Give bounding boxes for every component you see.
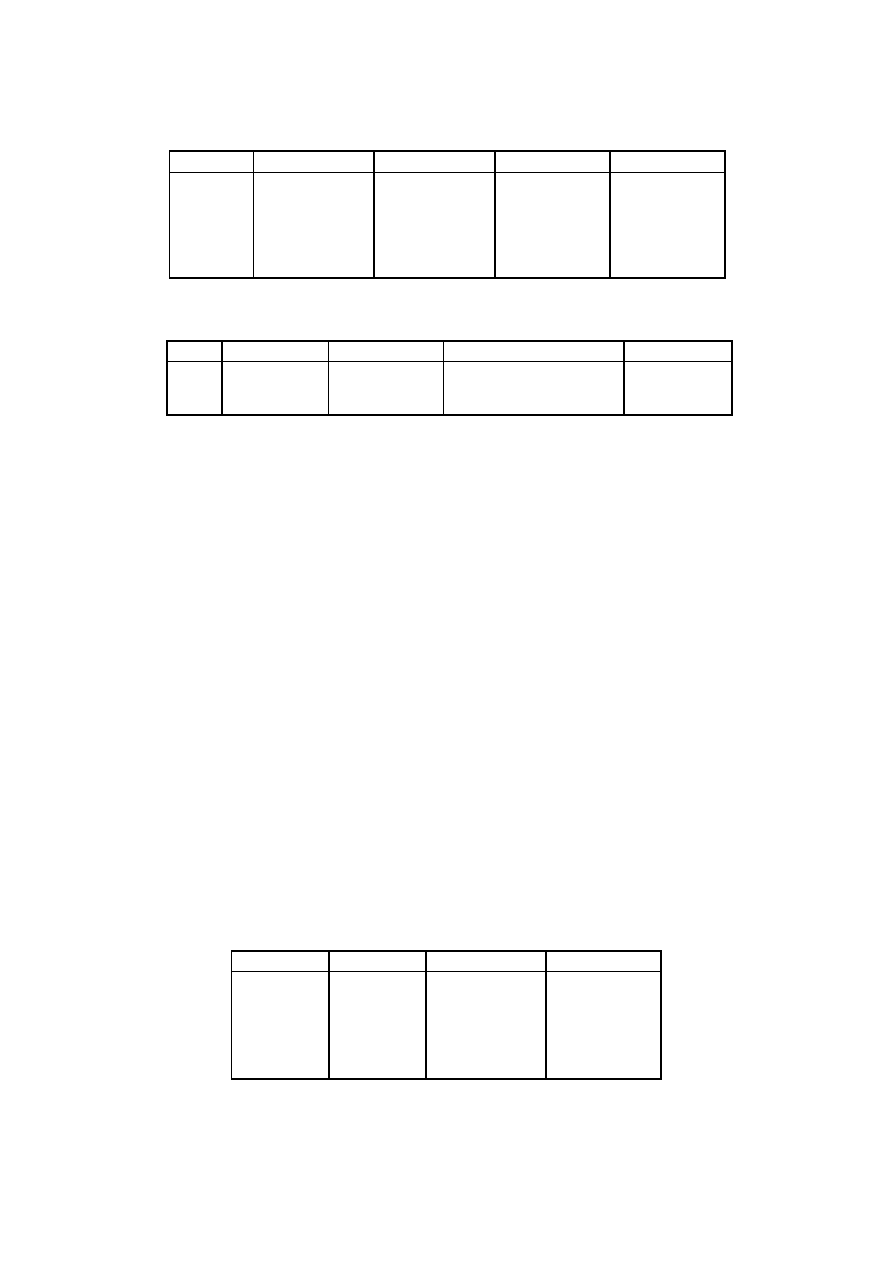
table-cell — [494, 173, 609, 277]
table-cell — [609, 173, 724, 277]
document-page — [0, 0, 893, 1263]
table-cell — [328, 972, 425, 1078]
table-cell — [443, 342, 623, 361]
table-cell — [545, 972, 660, 1078]
table-cell — [170, 152, 253, 172]
table-cell — [168, 362, 221, 414]
table-cell — [253, 152, 373, 172]
table-cell — [232, 952, 328, 971]
table-2 — [166, 340, 733, 416]
table-cell — [221, 342, 328, 361]
table-1-header-row — [170, 152, 724, 173]
table-3 — [231, 950, 662, 1080]
table-cell — [609, 152, 724, 172]
table-cell — [253, 173, 373, 277]
table-cell — [232, 972, 328, 1078]
table-cell — [494, 152, 609, 172]
table-cell — [168, 342, 221, 361]
table-2-row — [168, 362, 731, 414]
table-1 — [169, 150, 726, 279]
table-cell — [373, 152, 494, 172]
table-cell — [545, 952, 660, 971]
table-cell — [623, 362, 731, 414]
table-cell — [221, 362, 328, 414]
table-cell — [328, 342, 443, 361]
table-1-row — [170, 173, 724, 277]
table-3-row — [232, 972, 660, 1078]
table-cell — [425, 972, 545, 1078]
table-2-header-row — [168, 342, 731, 362]
table-cell — [170, 173, 253, 277]
table-cell — [425, 952, 545, 971]
table-cell — [328, 952, 425, 971]
table-cell — [328, 362, 443, 414]
table-cell — [373, 173, 494, 277]
table-3-header-row — [232, 952, 660, 972]
table-cell — [443, 362, 623, 414]
table-cell — [623, 342, 731, 361]
